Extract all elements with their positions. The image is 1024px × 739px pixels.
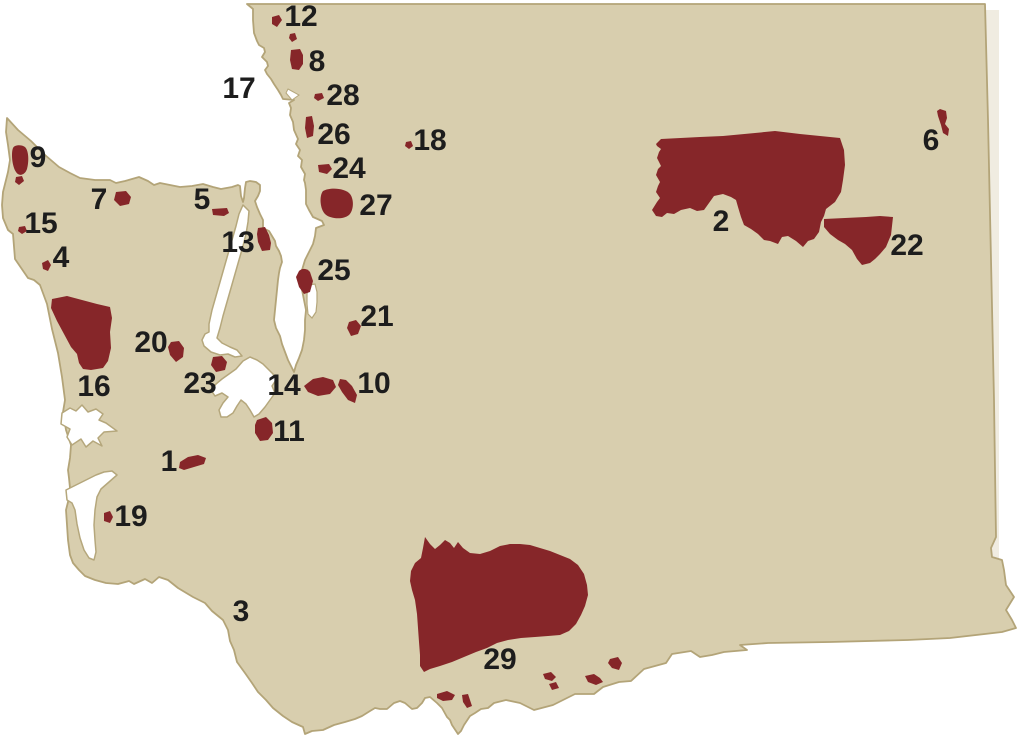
svg-text:23: 23 [183, 367, 216, 400]
svg-text:20: 20 [134, 326, 167, 359]
svg-text:17: 17 [222, 72, 255, 105]
svg-text:1: 1 [161, 445, 178, 478]
svg-text:18: 18 [413, 124, 446, 157]
svg-text:2: 2 [713, 205, 730, 238]
svg-text:5: 5 [194, 183, 211, 216]
svg-text:4: 4 [53, 241, 70, 274]
svg-text:12: 12 [284, 0, 317, 33]
svg-text:19: 19 [114, 500, 147, 533]
svg-text:11: 11 [273, 415, 305, 448]
svg-text:21: 21 [360, 300, 393, 333]
svg-text:14: 14 [267, 369, 301, 402]
svg-text:25: 25 [317, 254, 350, 287]
svg-text:13: 13 [221, 226, 254, 259]
svg-text:7: 7 [91, 183, 108, 216]
svg-text:16: 16 [77, 370, 110, 403]
svg-text:6: 6 [923, 124, 940, 157]
svg-text:8: 8 [309, 45, 326, 78]
svg-text:3: 3 [233, 595, 250, 628]
svg-text:26: 26 [317, 118, 350, 151]
svg-text:28: 28 [326, 79, 359, 112]
svg-text:9: 9 [30, 141, 47, 174]
svg-text:10: 10 [357, 367, 390, 400]
svg-text:15: 15 [24, 207, 57, 240]
svg-text:27: 27 [359, 189, 392, 222]
svg-text:29: 29 [483, 643, 516, 676]
svg-text:22: 22 [890, 229, 923, 262]
svg-text:24: 24 [332, 152, 366, 185]
